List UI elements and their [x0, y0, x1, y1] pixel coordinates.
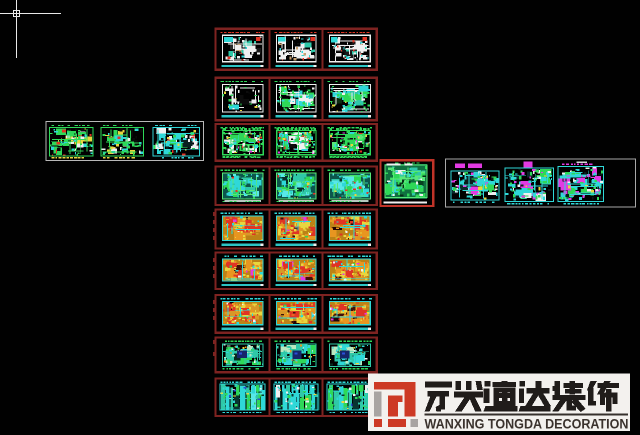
svg-text:WANXING TONGDA DECORATION: WANXING TONGDA DECORATION: [425, 416, 629, 431]
